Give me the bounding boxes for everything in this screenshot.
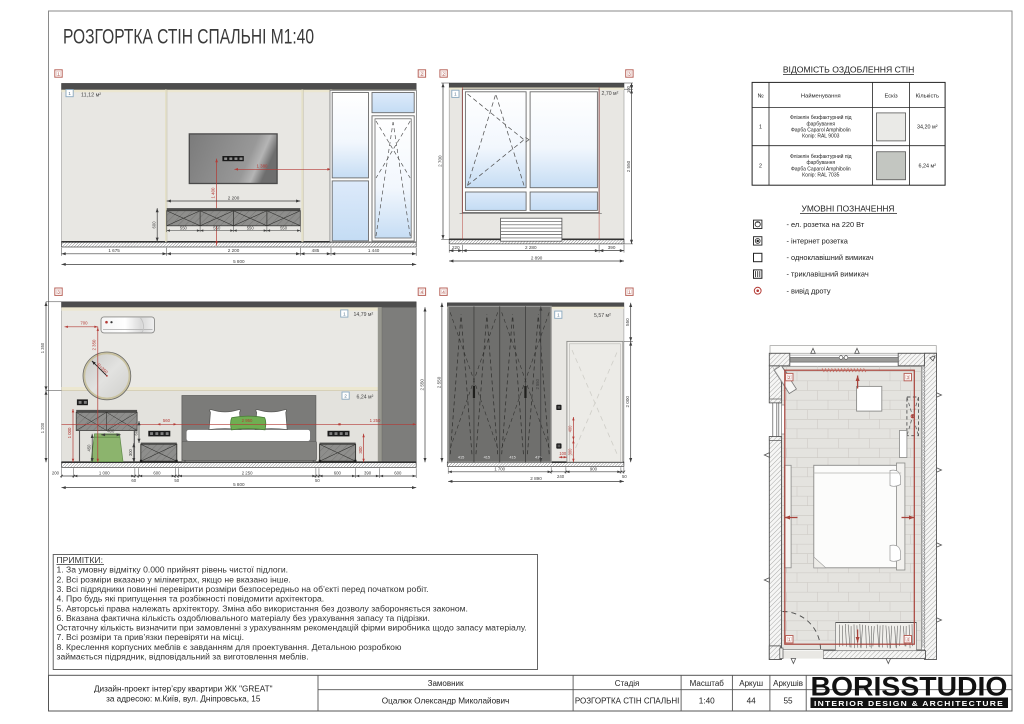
svg-text:8. Креслення корпусних меблів: 8. Креслення корпусних меблів є завдання… <box>57 642 402 652</box>
svg-text:300: 300 <box>128 448 133 456</box>
svg-text:- одноклавішний вимикач: - одноклавішний вимикач <box>787 253 874 262</box>
svg-text:1: 1 <box>788 637 791 642</box>
svg-text:2 200: 2 200 <box>228 248 240 253</box>
svg-text:700: 700 <box>80 321 88 326</box>
svg-text:560: 560 <box>163 418 171 423</box>
svg-text:1 700: 1 700 <box>494 466 505 471</box>
svg-text:2: 2 <box>788 375 791 380</box>
svg-text:2: 2 <box>421 71 424 76</box>
svg-text:240: 240 <box>557 474 565 479</box>
svg-text:фарбування: фарбування <box>807 160 836 166</box>
svg-text:5,57 м²: 5,57 м² <box>594 313 611 319</box>
svg-text:550: 550 <box>280 225 288 230</box>
svg-text:Фарба Caparol Amphibolin: Фарба Caparol Amphibolin <box>791 128 851 134</box>
svg-text:600: 600 <box>394 471 402 476</box>
svg-text:3: 3 <box>57 290 60 295</box>
svg-text:550: 550 <box>180 225 188 230</box>
svg-text:415: 415 <box>509 455 516 460</box>
svg-text:600: 600 <box>152 221 157 229</box>
svg-text:Стадія: Стадія <box>615 679 640 688</box>
svg-text:415: 415 <box>458 455 465 460</box>
svg-text:200: 200 <box>52 471 60 476</box>
svg-text:2 550: 2 550 <box>419 379 424 391</box>
svg-text:2: 2 <box>759 163 762 169</box>
svg-text:44: 44 <box>747 697 757 706</box>
svg-text:2 280: 2 280 <box>525 245 537 250</box>
svg-text:1: 1 <box>628 290 631 295</box>
svg-text:450: 450 <box>87 444 92 452</box>
svg-text:1 440: 1 440 <box>368 248 380 253</box>
svg-text:400: 400 <box>107 429 115 434</box>
svg-text:Фарба Caparol Amphibolin: Фарба Caparol Amphibolin <box>791 166 851 172</box>
svg-text:2 700: 2 700 <box>437 155 442 167</box>
svg-text:2 550: 2 550 <box>626 160 631 172</box>
svg-text:50: 50 <box>174 478 179 483</box>
svg-text:390: 390 <box>364 471 372 476</box>
svg-text:2: 2 <box>442 71 445 76</box>
svg-text:1 380: 1 380 <box>257 164 269 169</box>
svg-text:займається підрядник, відповід: займається підрядник, відповідальний за … <box>57 652 309 662</box>
svg-text:300: 300 <box>568 448 573 456</box>
svg-text:1 200: 1 200 <box>40 422 45 433</box>
svg-text:600: 600 <box>334 471 342 476</box>
svg-text:РОЗГОРТКА СТІН СПАЛЬНІ М1:40: РОЗГОРТКА СТІН СПАЛЬНІ М1:40 <box>63 26 314 49</box>
svg-text:INTERIOR DESIGN & ARCHITECTURE: INTERIOR DESIGN & ARCHITECTURE <box>814 699 1004 708</box>
svg-text:60: 60 <box>131 478 136 483</box>
svg-text:11,12 м²: 11,12 м² <box>81 93 101 99</box>
svg-text:за адресою: м.Київ, вул. Дніпр: за адресою: м.Київ, вул. Дніпровська, 15 <box>106 695 261 704</box>
svg-text:6,24 м²: 6,24 м² <box>919 163 937 169</box>
svg-text:390: 390 <box>608 245 616 250</box>
svg-text:2. Всі розміри вказано у мілім: 2. Всі розміри вказано у міліметрах, якщ… <box>57 574 291 584</box>
svg-text:РОЗГОРТКА СТІН СПАЛЬНІ: РОЗГОРТКА СТІН СПАЛЬНІ <box>575 697 680 706</box>
svg-text:415: 415 <box>484 455 491 460</box>
svg-text:BORISSTUDIO: BORISSTUDIO <box>811 672 1008 702</box>
svg-text:- вивід дроту: - вивід дроту <box>787 286 831 295</box>
svg-text:1 675: 1 675 <box>108 248 120 253</box>
svg-text:- триклавішний вимикач: - триклавішний вимикач <box>787 270 869 279</box>
svg-text:фарбування: фарбування <box>807 121 836 127</box>
svg-text:485: 485 <box>312 248 320 253</box>
svg-text:Масштаб: Масштаб <box>690 679 725 688</box>
svg-text:2 890: 2 890 <box>530 476 542 481</box>
svg-text:Ескіз: Ескіз <box>884 94 898 100</box>
svg-text:Оцалюк Олександр Миколайович: Оцалюк Олександр Миколайович <box>382 697 510 706</box>
svg-text:2,70 м²: 2,70 м² <box>602 91 619 97</box>
svg-text:- інтернет розетка: - інтернет розетка <box>787 237 849 246</box>
svg-text:Найменування: Найменування <box>801 93 841 100</box>
svg-text:14,79 м²: 14,79 м² <box>354 312 374 318</box>
svg-text:2 950: 2 950 <box>242 418 253 423</box>
svg-text:Кількість: Кількість <box>916 94 939 100</box>
svg-text:УМОВНІ ПОЗНАЧЕННЯ: УМОВНІ ПОЗНАЧЕННЯ <box>802 204 895 214</box>
svg-text:4: 4 <box>442 290 445 295</box>
svg-text:1. За умовну відмітку 0.000 пр: 1. За умовну відмітку 0.000 прийнят ріве… <box>57 565 289 575</box>
svg-text:1 400: 1 400 <box>211 187 216 199</box>
svg-text:50: 50 <box>622 474 627 479</box>
svg-text:1 000: 1 000 <box>99 471 110 476</box>
svg-text:1:40: 1:40 <box>699 697 715 706</box>
svg-text:Дизайн-проект інтер’єру кварти: Дизайн-проект інтер’єру квартири ЖК "GRE… <box>94 685 273 694</box>
svg-text:1 350: 1 350 <box>40 342 45 353</box>
svg-text:ПРИМІТКИ:: ПРИМІТКИ: <box>57 555 103 565</box>
svg-text:Флізелін безфактурний під: Флізелін безфактурний під <box>790 153 852 160</box>
svg-text:Аркушів: Аркушів <box>773 679 803 688</box>
svg-text:2 550: 2 550 <box>436 376 441 388</box>
svg-text:ВІДОМІСТЬ ОЗДОБЛЕННЯ СТІН: ВІДОМІСТЬ ОЗДОБЛЕННЯ СТІН <box>783 65 915 75</box>
svg-text:3: 3 <box>907 375 910 380</box>
svg-text:50: 50 <box>315 478 320 483</box>
svg-text:7. Всі розміри та прив’язки пе: 7. Всі розміри та прив’язки перевіряти н… <box>57 632 245 642</box>
svg-text:2 350: 2 350 <box>92 339 97 350</box>
svg-text:300: 300 <box>358 446 363 454</box>
svg-text:3. Всі підрядники повинні пере: 3. Всі підрядники повинні перевірити роз… <box>57 584 429 594</box>
svg-text:600: 600 <box>153 471 161 476</box>
svg-text:550: 550 <box>213 225 221 230</box>
svg-text:Колір: RAL 7035: Колір: RAL 7035 <box>802 173 839 179</box>
svg-text:6. Вказана фактична кількість: 6. Вказана фактична кількість оздоблювал… <box>57 613 430 623</box>
svg-text:3: 3 <box>628 71 631 76</box>
svg-text:2 890: 2 890 <box>531 255 543 260</box>
svg-text:Флізелін безфактурний під: Флізелін безфактурний під <box>790 114 852 121</box>
svg-text:- ел. розетка на 220 Вт: - ел. розетка на 220 Вт <box>787 220 865 229</box>
svg-text:5 800: 5 800 <box>233 482 245 487</box>
svg-text:2 250: 2 250 <box>242 471 253 476</box>
svg-text:Замовник: Замовник <box>428 679 464 688</box>
svg-text:1 000: 1 000 <box>67 427 72 438</box>
svg-text:550: 550 <box>247 225 255 230</box>
svg-text:550: 550 <box>625 318 630 326</box>
svg-text:1 250: 1 250 <box>370 418 381 423</box>
svg-text:900: 900 <box>590 466 598 471</box>
svg-text:№: № <box>757 94 763 100</box>
svg-text:2 000: 2 000 <box>625 396 630 408</box>
svg-text:5. Авторські права належать ар: 5. Авторські права належать архітектору.… <box>57 603 468 613</box>
svg-text:Остаточну кількість визначити: Остаточну кількість визначити при замовл… <box>57 623 527 633</box>
svg-text:Аркуш: Аркуш <box>739 679 763 688</box>
svg-text:2 550: 2 550 <box>535 378 540 389</box>
svg-text:6,24 м²: 6,24 м² <box>357 394 374 400</box>
svg-text:4. Про будь які припущення та: 4. Про будь які припущення та розбіжност… <box>57 594 325 604</box>
svg-text:100: 100 <box>559 451 567 456</box>
svg-text:4: 4 <box>907 637 910 642</box>
svg-text:4: 4 <box>421 290 424 295</box>
svg-text:34,20 м²: 34,20 м² <box>917 125 938 131</box>
svg-text:400: 400 <box>568 425 573 433</box>
svg-text:1: 1 <box>759 125 762 131</box>
svg-text:5 800: 5 800 <box>233 259 245 264</box>
svg-text:Колір: RAL 9003: Колір: RAL 9003 <box>802 134 839 140</box>
svg-text:55: 55 <box>783 697 793 706</box>
svg-text:2 200: 2 200 <box>228 195 240 200</box>
svg-text:220: 220 <box>452 245 460 250</box>
svg-text:1: 1 <box>57 71 60 76</box>
svg-text:600: 600 <box>133 428 138 436</box>
